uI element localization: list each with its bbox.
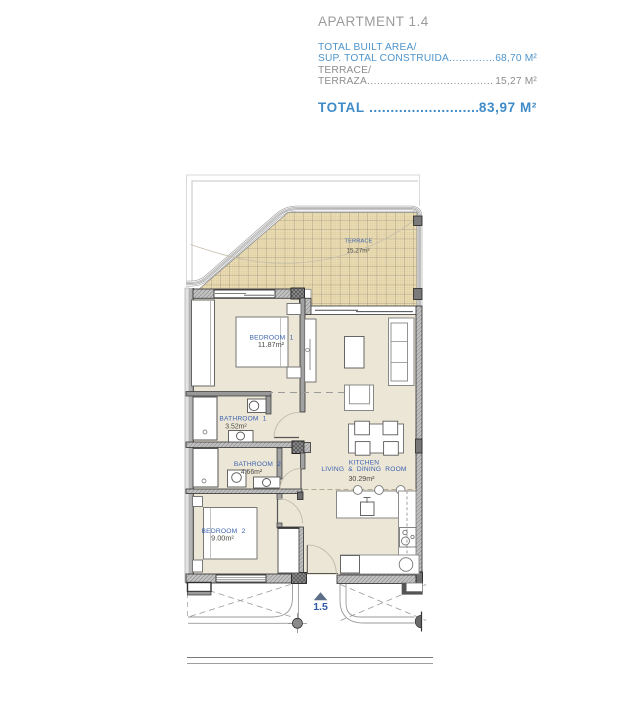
svg-text:BATHROOM 2: BATHROOM 2 [234,461,281,468]
svg-text:15.27m²: 15.27m² [346,248,369,255]
svg-text:11.87m²: 11.87m² [258,340,285,349]
svg-text:BATHROOM 1: BATHROOM 1 [219,416,266,423]
svg-text:1.5: 1.5 [313,601,328,613]
svg-text:3.52m²: 3.52m² [225,423,247,430]
svg-text:30.29m²: 30.29m² [348,475,375,483]
svg-text:9.00m²: 9.00m² [211,534,234,543]
svg-text:LIVING & DINING ROOM: LIVING & DINING ROOM [321,466,406,473]
svg-text:TERRACE: TERRACE [345,239,373,245]
svg-text:4.66m²: 4.66m² [241,469,263,476]
